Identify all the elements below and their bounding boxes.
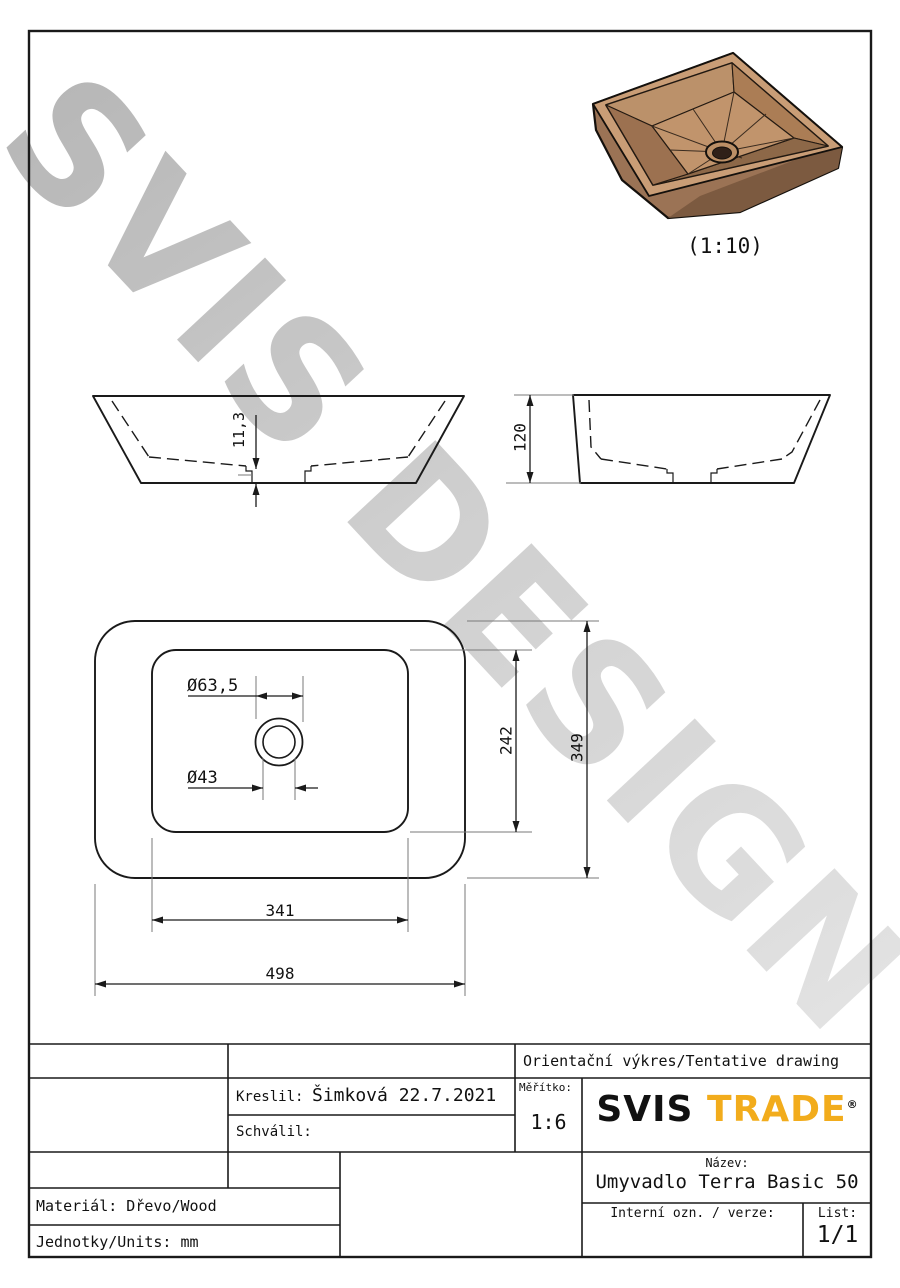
title-block-grid — [28, 1044, 872, 1258]
titleblock-tentative-note: Orientační výkres/Tentative drawing — [523, 1052, 839, 1070]
logo-svis-text: SVIS — [596, 1089, 693, 1130]
titleblock-sheet-label: List: — [803, 1206, 872, 1221]
dim-242-text: 242 — [497, 701, 516, 781]
titleblock-approved-label: Schválil: — [236, 1124, 312, 1140]
sheet-border — [29, 31, 871, 1257]
plan-view — [95, 621, 465, 878]
titleblock-material: Materiál: Dřevo/Wood — [36, 1197, 217, 1215]
titleblock-drawn-value: Šimková 22.7.2021 — [312, 1085, 496, 1106]
drawing-sheet: SVIS DESIGN — [0, 0, 900, 1288]
titleblock-scale-value: 1:6 — [515, 1110, 582, 1134]
side-view — [573, 395, 830, 483]
dim-11-3-text: 11,3 — [230, 390, 248, 470]
dim-341-text: 341 — [240, 901, 320, 920]
front-view — [93, 396, 464, 483]
titleblock-scale-label: Měřítko: — [519, 1081, 572, 1094]
dim-498-text: 498 — [240, 964, 320, 983]
titleblock-name-label: Název: — [582, 1156, 872, 1170]
dim-63-5-text: Ø63,5 — [187, 676, 238, 696]
logo-trade-text: TRADE — [707, 1089, 847, 1130]
logo-registered-mark: ® — [847, 1098, 858, 1111]
render-scale-caption: (1:10) — [655, 234, 795, 258]
dim-120-text: 120 — [511, 398, 530, 478]
sink-3d-render — [593, 53, 842, 218]
dim-43-text: Ø43 — [187, 768, 218, 788]
titleblock-internal-label: Interní ozn. / verze: — [582, 1206, 803, 1221]
titleblock-sheet-value: 1/1 — [803, 1222, 872, 1248]
titleblock-units: Jednotky/Units: mm — [36, 1233, 199, 1251]
titleblock-drawn-label: Kreslil: — [236, 1089, 303, 1105]
plan-dimension-lines — [95, 621, 599, 996]
svis-trade-logo: SVIS TRADE® — [582, 1089, 872, 1130]
dim-349-text: 349 — [568, 708, 587, 788]
titleblock-name-value: Umyvadlo Terra Basic 50 — [582, 1171, 872, 1193]
